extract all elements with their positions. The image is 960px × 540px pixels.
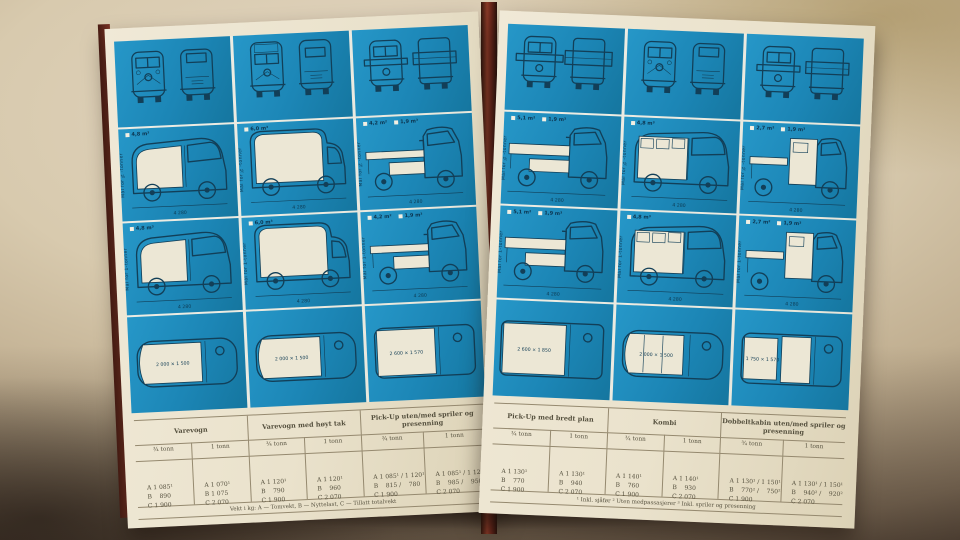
volume-label: 6,0 m³ (244, 125, 268, 132)
doublecab-side-drawing: 4 280 (740, 122, 860, 219)
diagram-panel-left: 4,8 m³ Mål for ¾-tonner 4 280 4,8 m³ (114, 25, 485, 413)
front-rear-views (624, 29, 744, 120)
side-view-1t: 5,1 m² 1,9 m³ Mål for 1-tonner 4 280 (497, 206, 617, 303)
pickup-top-drawing: 2 600 × 1 570 (365, 301, 485, 402)
svg-text:4 280: 4 280 (178, 304, 192, 311)
pickup-front-rear-drawing (352, 25, 472, 116)
highroof-top-drawing: 2 000 × 1 500 (246, 306, 366, 407)
volume-label: 4,8 m³ (125, 131, 149, 138)
svg-text:4 280: 4 280 (297, 298, 311, 305)
highroof-side-drawing: 4 280 (237, 118, 357, 215)
van-top-drawing: 2 000 × 1 500 (127, 312, 247, 413)
top-view: 2 600 × 1 850 (493, 299, 614, 400)
top-view: 1 750 × 1 570 (732, 309, 853, 410)
locker-volume-label: 1,9 m³ (538, 210, 562, 217)
weight-values: A 1 130¹B 770C 1 900 (491, 443, 550, 491)
weight-values: A 1 130¹ / 1 150¹B 770² / 750²C 1 900 (718, 453, 782, 502)
side-view-34: 4,8 m³ Mål for ¾-tonner 4 280 (118, 124, 238, 221)
kombi-front-rear-drawing (624, 29, 744, 120)
svg-text:4 280: 4 280 (668, 296, 682, 303)
side-view-34: 5,1 m² 1,9 m³ Mål for ¾-tonner 4 280 (501, 112, 621, 209)
platform-area-label: 5,1 m² (507, 209, 531, 216)
side-view-34: 2,7 m² 1,9 m³ Mål for ¾-tonner (740, 122, 860, 219)
top-view: 2 600 × 1 570 (365, 301, 485, 402)
page-left: 4,8 m³ Mål for ¾-tonner 4 280 4,8 m³ (104, 11, 501, 528)
widepickup-side-drawing: 4 280 (501, 112, 621, 209)
locker-volume-label: 1,9 m³ (398, 212, 422, 219)
volume-label: 6,0 m³ (249, 219, 273, 226)
platform-area-label: 4,2 m² (363, 120, 387, 127)
top-view: 2 000 × 1 500 (127, 312, 247, 413)
weight-values: A 1 120¹B 960C 2 070 (305, 450, 363, 499)
weight-values: A 1 140¹B 760C 1 900 (604, 448, 663, 496)
platform-area-label: 2,7 m² (750, 125, 774, 132)
weight-values: A 1 130¹ / 1 150¹B 940² / 920²C 2 070 (780, 456, 844, 505)
side-view-1t: 6,0 m³ Mål for 1-tonner 4 280 (241, 212, 361, 309)
front-rear-views (233, 31, 353, 122)
weight-values: A 1 085¹ / 1 120¹B 985 / 950C 2 070 (423, 445, 487, 494)
diagram-column-pickup-bredt: 5,1 m² 1,9 m³ Mål for ¾-tonner 4 280 (493, 24, 625, 401)
svg-text:4 280: 4 280 (785, 301, 799, 308)
weight-values: A 1 130¹B 940C 2 070 (547, 446, 606, 494)
pickup-side-drawing: 4 280 (356, 113, 476, 210)
diagram-panel-right: 5,1 m² 1,9 m³ Mål for ¾-tonner 4 280 (493, 24, 864, 411)
doublecab-top-drawing: 1 750 × 1 570 (732, 309, 853, 410)
side-view-1t: 4,8 m³ Mål for 1-tonner 4 280 (123, 218, 243, 315)
side-view-1t: 2,7 m² 1,9 m³ Mål for 1-tonner (736, 216, 856, 313)
top-view: 2 000 × 1 500 (612, 304, 733, 405)
weight-values: A 1 070¹B 1 075C 2 070 (192, 456, 250, 505)
kombi-top-drawing: 2 000 × 1 500 (612, 304, 733, 405)
highroof-front-rear-drawing (233, 31, 353, 122)
svg-text:4 280: 4 280 (292, 204, 306, 211)
svg-text:4 280: 4 280 (672, 202, 686, 209)
kombi-side-drawing: 4 280 (620, 117, 740, 214)
svg-text:4 280: 4 280 (173, 210, 187, 217)
photo-of-brochure: 4,8 m³ Mål for ¾-tonner 4 280 4,8 m³ (0, 0, 960, 540)
highroof-side-drawing: 4 280 (241, 212, 361, 309)
widepickup-top-drawing: 2 600 × 1 850 (493, 299, 614, 400)
front-rear-views (744, 34, 864, 125)
diagram-column-varevogn: 4,8 m³ Mål for ¾-tonner 4 280 4,8 m³ (114, 36, 247, 413)
locker-volume-label: 1,9 m³ (542, 116, 566, 123)
svg-text:4 280: 4 280 (413, 293, 427, 300)
side-view-1t: 4,2 m² 1,9 m³ Mål for 1-tonner 4 280 (360, 207, 480, 304)
pickup-side-drawing: 4 280 (360, 207, 480, 304)
front-rear-views (505, 24, 625, 115)
volume-label: 4,8 m³ (627, 214, 651, 221)
diagram-column-pickup: 4,2 m² 1,9 m³ Mål for ¾-tonner 4 280 (352, 25, 485, 402)
widepickup-front-rear-drawing (505, 24, 625, 115)
side-view-34: 6,0 m³ Mål for ¾-tonner 4 280 (237, 118, 357, 215)
svg-text:4 280: 4 280 (789, 207, 803, 214)
front-rear-views (114, 36, 234, 127)
spec-table-left: Varevogn Varevogn med høyt tak Pick-Up u… (134, 404, 488, 520)
weight-values: A 1 085¹ / 1 120¹B 815 / 780C 1 900 (361, 448, 425, 497)
side-view-34: 4,8 m³ Mål for ¾-tonner 4 280 (620, 117, 740, 214)
side-view-34: 4,2 m² 1,9 m³ Mål for ¾-tonner 4 280 (356, 113, 476, 210)
van-side-drawing: 4 280 (118, 124, 238, 221)
platform-area-label: 2,7 m² (746, 219, 770, 226)
diagram-column-hoyt-tak: 6,0 m³ Mål for ¾-tonner 4 280 6,0 m³ Mål (233, 31, 366, 408)
diagram-column-kombi: 4,8 m³ Mål for ¾-tonner 4 280 (612, 29, 744, 406)
locker-volume-label: 1,9 m³ (394, 118, 418, 125)
top-view: 2 000 × 1 500 (246, 306, 366, 407)
doublecab-side-drawing: 4 280 (736, 216, 856, 313)
widepickup-side-drawing: 4 280 (497, 206, 617, 303)
svg-text:4 280: 4 280 (546, 291, 560, 298)
locker-volume-label: 1,9 m³ (781, 126, 805, 133)
svg-text:4 280: 4 280 (550, 197, 564, 204)
locker-volume-label: 1,9 m³ (777, 220, 801, 227)
weight-values: A 1 085¹B 890C 1 900 (136, 458, 194, 507)
diagram-column-dobbeltkabin: 2,7 m² 1,9 m³ Mål for ¾-tonner (732, 34, 864, 411)
van-side-drawing: 4 280 (123, 218, 243, 315)
svg-text:4 280: 4 280 (409, 199, 423, 206)
doublecab-front-rear-drawing (744, 34, 864, 125)
weight-values: A 1 120¹B 790C 1 900 (248, 453, 306, 502)
spec-table-right: Pick-Up med bredt plan Kombi Dobbeltkabi… (490, 402, 846, 517)
volume-label: 4,8 m³ (130, 225, 154, 232)
van-front-rear-drawing (114, 36, 234, 127)
weight-values: A 1 140¹B 930C 2 070 (661, 451, 720, 499)
front-rear-views (352, 25, 472, 116)
volume-label: 4,8 m³ (631, 120, 655, 127)
kombi-side-drawing: 4 280 (616, 211, 736, 308)
page-right: 5,1 m² 1,9 m³ Mål for ¾-tonner 4 280 (479, 10, 876, 528)
platform-area-label: 4,2 m² (367, 214, 391, 221)
platform-area-label: 5,1 m² (511, 115, 535, 122)
side-view-1t: 4,8 m³ Mål for 1-tonner 4 280 (616, 211, 736, 308)
